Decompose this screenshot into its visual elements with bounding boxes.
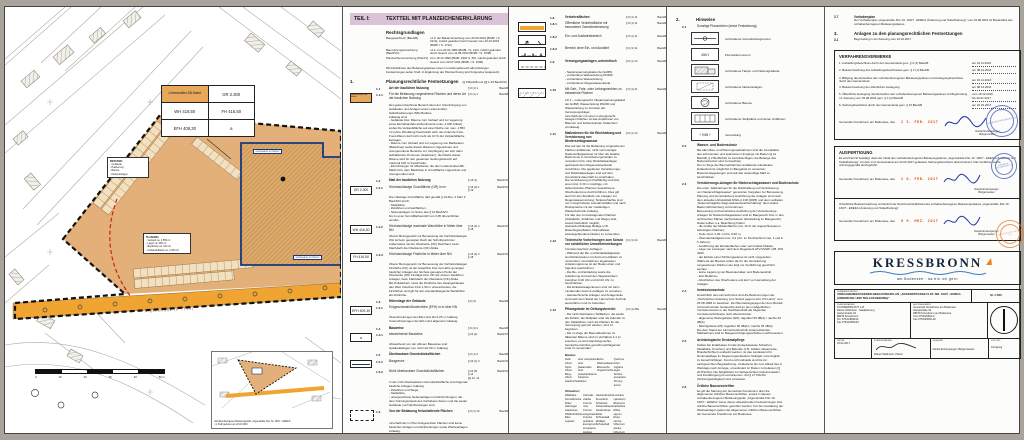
item-1-12: 1.12 Technische Vorkehrungen zum Schutz … (518, 239, 666, 247)
body-1-5-2: In der nicht überbaubaren Grundstücksflä… (389, 381, 468, 408)
item-2-1: 2.1 Sonstige Planzeichen (keine Festsetz… (676, 25, 824, 29)
wh-swatch: WH 416,50 (350, 225, 372, 234)
item-2-6: 2.6 Örtliche Bauvorschriften (676, 385, 824, 389)
sb-markt-swatch: Lebensmittel-SB-Markt (350, 93, 372, 103)
item-1-3: 1.3 Höhenlage der Gebäude § 9 (3) BauGB (350, 300, 508, 304)
gr-swatch: GR 2.300 (350, 186, 372, 195)
baeume-list: Feld-Ahorn Spitz-Ahorn Berg-Ahorn Hainbu… (565, 358, 626, 387)
bekanntmachung-place: Gemeinde Kressbronn am Bodensee, den (839, 219, 895, 223)
wave-icon (868, 270, 988, 275)
building-point (281, 177, 286, 182)
item-1-4: 1.4 Bauweise § 9 (1) 2 BauGB (350, 327, 508, 331)
item-1-3-1: EFH 409,30 1.3.1 Erdgeschossfußbodenhöhe… (350, 306, 508, 315)
body-2-4: Hinsichtlich des Lärmschutzes sind die B… (697, 294, 784, 336)
symbol-baeume: vorhandene Bäume (691, 96, 824, 109)
scale-tick: 40 (134, 375, 137, 379)
gesehen-label: GESEHEN (933, 340, 987, 342)
planzeichner-name: Rainer Wollmann, Planer (874, 353, 928, 356)
ausfertigung-title: AUSFERTIGUNG (839, 150, 1016, 155)
body-1-6: Innerhalb der im Plan festgesetzten Fläc… (389, 422, 468, 433)
divider (835, 198, 1020, 199)
tree-icon (691, 96, 719, 109)
ausfertigung-signature-row: Gemeinde Kressbronn am Bodensee, den 2 8… (839, 172, 1016, 186)
baugrenze-swatch (350, 360, 372, 368)
item-1-5: 1.5 Überbaubare Grundstücksflächen § 9 (… (350, 353, 508, 357)
overview-inset: Vorhabenbezogener Bebauungsplan „Argenst… (211, 351, 333, 429)
bauweise-swatch: a (350, 333, 372, 342)
section-3: 3. Anlagen zu den planungsrechtlichen Fe… (834, 31, 1021, 36)
verfahrensvermerke-title: VERFAHRENSVERMERKE (839, 54, 1016, 59)
inset-caption: Vorhabenbezogener Bebauungsplan „Argenst… (214, 421, 291, 427)
mayor-signature (942, 114, 988, 130)
parcel-number-icon: 400/1 (691, 48, 719, 61)
gesehen-name: Daniel Enzensperger, Bürgermeister (933, 348, 987, 351)
roof-label-2: GRÜNDACH EXTENSIV (293, 255, 322, 260)
item-1-9: 1.9 Versorgungsanlagen, unterirdisch § 9… (518, 60, 666, 70)
building-icon (691, 64, 719, 77)
vv-row-4: 4. Bekanntmachung der öffentlichen Ausle… (839, 86, 1016, 91)
bestand-lines: - Gebäude - Parkierung - Bäume - Nebenan… (110, 163, 146, 176)
item-1-8: 1.8 Verkehrsflächen § 9 (1) 11 BauGB (518, 16, 666, 20)
teil1-title: TEXTTEIL MIT PLANZEICHENERKLÄRUNG (386, 16, 492, 22)
straeucher-list: Waldrebe Kornelkirsche Roter Hartriegel … (565, 394, 626, 433)
roof-label-1: GRÜNDACH EXTENSIV (253, 149, 282, 154)
column-vermerke: 2.7 Vorhabenplan Der Vorhabenplan „Argen… (829, 7, 1024, 433)
verkehrsflaeche-swatch (518, 22, 546, 32)
parcel-boundary-icon (691, 32, 719, 45)
column-hinweise: 2. Hinweise 2.1 Sonstige Planzeichen (ke… (671, 7, 828, 433)
item-1-8-3: 1.8.3 Bereich ohne Ein- und Ausfahrt § 9… (518, 47, 666, 57)
body-1-2-1: Die zulässige Grundfläche darf gemäß § 1… (389, 196, 468, 223)
edeka-building-baugrenze (241, 143, 341, 265)
outbuilding-icon (691, 80, 719, 93)
scale-value: M. 1:500 (990, 294, 1001, 298)
north-arrow-icon (990, 306, 1018, 334)
schablone-wh: WH 416,50 (162, 103, 209, 119)
scale-bar: 0 10 20 30 40 50 m (35, 369, 165, 379)
body-1-9: - Niederspannungskabel der EnBW - vorhan… (565, 71, 626, 86)
schablone-bauweise: a (209, 120, 255, 136)
symbol-nebenanlagen: vorhandene Nebenanlagen (691, 80, 824, 93)
plan-sheet: Lebensmittel-SB-Markt GR 2.300 WH 416,50… (4, 6, 1020, 434)
schablone-nutzung: Lebensmittel-SB-Markt (162, 86, 209, 102)
ausfertigung-box: AUSFERTIGUNG Es wird hiermit bestätigt, … (834, 146, 1021, 241)
scale-tick: 30 (109, 375, 112, 379)
item-1-5-1: 1.5.1 Baugrenze § 23 (1) 3 BauNVO (350, 360, 508, 368)
symbol-grundstuecksgrenzen: vorhandene Grundstücksgrenzen (691, 32, 824, 45)
planner-signature (874, 342, 918, 352)
body-1-3-1: Überschreitungen der EFH sind bis 0,25 m… (389, 316, 468, 324)
item-1-2-2: WH 416,50 1.2.2 Höchstzulässige maximale… (350, 225, 508, 234)
plan-title: VORHABENBEZOGENER BEBAUUNGSPLAN „ARGENST… (837, 292, 961, 300)
planverfasser-value: PLANWERKSTATT e.B. Rainer Wollmann - Sta… (837, 306, 874, 324)
rechtsgrundlagen-title: Rechtsgrundlagen (386, 30, 508, 35)
teil1-label: TEIL I: (354, 16, 386, 22)
body-1-4-1: Abweichend von der offenen Bauweise sind… (389, 343, 468, 351)
mayor-signature (942, 172, 982, 186)
bekanntmachung-text: Ortsübliche Bekanntmachung und Eintritt … (839, 203, 1016, 210)
datum-value: 22.02.2017 (837, 342, 850, 345)
efh-swatch: EFH 409,30 (350, 306, 372, 315)
nutzungsschablone-map: Lebensmittel-SB-Markt GR 2.300 WH 416,50… (161, 85, 255, 137)
bestand-label: BESTAND: - Gebäude - Parkierung - Bäume … (107, 157, 149, 178)
section-2: 2. Hinweise (676, 17, 824, 22)
body-2-3: Die unter „Maßnahmen für die Rückhaltung… (697, 187, 784, 287)
item-1-10: 1.10 Mit Geh-, Fahr- oder Leitungsrechte… (518, 88, 666, 98)
item-1-1: 1.1 Art der baulichen Nutzung § 9 (1) 1 … (350, 87, 508, 91)
bekanntmachung-date-stamp: 0 9. MRZ. 2017 (901, 219, 938, 223)
fertigung-label: Fertigung (991, 346, 1018, 349)
einausfahrt-swatch (518, 35, 546, 45)
item-1-6: 1.6 Von der Bebauung freizuhaltende Fläc… (350, 410, 508, 421)
einleitung-note: Mit Inkrafttreten des Bebauungsplanes tr… (386, 67, 508, 74)
overview-inset-map (212, 352, 330, 408)
symbol-vermassung: + 9.88 + Vermaßung (691, 128, 824, 141)
kressbronn-logo: KRESSBRONN am Bodensee · da bin ich gern (834, 251, 1021, 285)
body-1-2-2: Oberer Bezugspunkt zur Bemessung der höc… (389, 235, 468, 250)
vv-row-1: 1. Aufstellungsbeschluss durch den Gemei… (839, 62, 1016, 67)
vv-row-6: 6. Satzungsbeschluss durch den Gemeinder… (839, 104, 1016, 109)
ohne-einausfahrt-swatch (518, 47, 546, 57)
straeucher-title: Sträucher: (565, 389, 666, 393)
ausfertigung-date-stamp: 2 8. FEB. 2017 (901, 177, 938, 181)
item-1-5-2: 1.5.2 Nicht überbaubare Grundstücksfläch… (350, 370, 508, 380)
item-1-2-3: FH 416,50 1.2.3 Höchstzulässige Firsthöh… (350, 253, 508, 262)
schablone-fh: FH 416,50 (209, 103, 255, 119)
rechtsgrundlage-planzv: Planzeichenverordnung (PlanzV) vom 18.12… (386, 57, 508, 64)
vv-row-2: 2. Bekanntmachung des Aufstellungsbeschl… (839, 69, 1016, 74)
body-1-12: Immissionsschutz-Auflagen: - Während der… (565, 248, 626, 305)
site-plan-map: Lebensmittel-SB-Markt GR 2.300 WH 416,50… (5, 7, 341, 433)
body-1-13: - Die nicht überbauten Teilflächen, die … (565, 313, 626, 351)
verfahrensvermerke-box: VERFAHRENSVERMERKE 1. Aufstellungsbeschl… (834, 50, 1021, 140)
item-1-8-1: 1.8.1 Öffentliche Verkehrsfläche mit bes… (518, 22, 666, 32)
scale-tick: 10 (59, 375, 62, 379)
mayor-signature (942, 214, 982, 228)
ausfertigung-text: Es wird hiermit bestätigt, dass der Inha… (839, 157, 1016, 168)
item-1-8-2: 1.8.2 Ein- und Ausfahrtsbereich § 9 (1) … (518, 35, 666, 45)
scale-tick: 0 (35, 375, 37, 379)
scale-tick: 50 m (159, 375, 165, 379)
rechtsgrundlage-baunvo: Baunutzungsverordnung (BauNVO) i.d.F. vo… (386, 49, 508, 56)
body-2-5: Sollten bei Erdarbeiten Funde (beispiels… (697, 344, 784, 382)
body-1-10: LR 1 – Leitungsrecht: Niederspannungskab… (565, 99, 626, 130)
planung-lines: - Verkauf ca. 1.550 m² - Lager ca. 650 m… (146, 239, 188, 252)
vv-place: Gemeinde Kressbronn am Bodensee, den (839, 120, 895, 124)
ausfertigung-signer: Daniel Enzensperger Bürgermeister (957, 188, 1016, 194)
ausfertigung-place: Gemeinde Kressbronn am Bodensee, den (839, 177, 895, 181)
btg-label: BTG.-NR.: (991, 340, 1018, 342)
baeume-title: Bäume: (565, 353, 666, 357)
item-2-7: 2.7 Vorhabenplan Der Vorhabenplan „Argen… (834, 15, 1021, 26)
symbol-flurstuecknummern: 400/1 Flurstücknummern (691, 48, 824, 61)
vorhabenplan-body: Der Vorhabenplan „Argenstraße Flst.-Nr. … (854, 19, 1021, 26)
section-1: 1. Planungsrechtliche Festsetzungen (§ 9… (350, 79, 508, 84)
parking-icon (691, 112, 719, 125)
body-1-11: Das auf den für die Bebauung vorgesehene… (565, 145, 626, 237)
leitungsrecht-swatch (518, 88, 546, 98)
schablone-efh: EFH 409,30 (162, 120, 209, 136)
body-2-6: Es gilt die Satzung der Gemeinde Kressbr… (697, 390, 784, 417)
freihalteflaeche-swatch (350, 410, 374, 421)
bekanntmachung-signature-row: Gemeinde Kressbronn am Bodensee, den 0 9… (839, 214, 1016, 228)
item-1-1-1: Lebensmittel-SB-Markt 1.1.1 Für die Beba… (350, 93, 508, 103)
symbol-gebaeude: vorhandene Haupt- und Nebengebäude (691, 64, 824, 77)
sail-icon (986, 258, 992, 265)
body-1-2-3: Oberer Bezugspunkt zur Bemessung der höc… (389, 263, 468, 297)
fh-swatch: FH 416,50 (350, 253, 372, 262)
schablone-gr: GR 2.300 (209, 86, 255, 102)
scale-tick: 20 (84, 375, 87, 379)
vv-row-3: 3. Billigung des Entwurfes des vorhabenb… (839, 77, 1016, 84)
vv-row-5: 5. Öffentliche Auslegung des Entwurfes d… (839, 93, 1016, 101)
item-1-2-1: GR 2.300 1.2.1 Höchstzulässige Grundfläc… (350, 186, 508, 195)
body-1-1-1: Der gekennzeichnete Bereich dient der Un… (389, 104, 468, 177)
item-1-11: 1.11 Maßnahmen für die Rückhaltung und V… (518, 132, 666, 144)
teil1-header: TEIL I: TEXTTEIL MIT PLANZEICHENERKLÄRUN… (350, 13, 508, 25)
dimension-icon: + 9.88 + (691, 128, 719, 141)
logo-tagline: am Bodensee · da bin ich gern (837, 277, 1018, 281)
rechtsgrundlage-baugb: Baugesetzbuch (BauGB) i.d.F. der Bekannt… (386, 37, 508, 47)
auftraggeber-value: Gemeinde Kressbronn am Bodensee Hauptstr… (913, 306, 956, 321)
symbol-stellplaetze: vorhandene Stellplätze und deren Zufahrt… (691, 112, 824, 125)
item-1-2: 1.2 Maß der baulichen Nutzung § 16 (1) B… (350, 179, 508, 183)
title-block: PLANBEZEICHNUNG VORHABENBEZOGENER BEBAUU… (834, 289, 1021, 359)
divider (342, 7, 343, 433)
versorgung-swatch (518, 60, 546, 70)
item-1-4-1: a 1.4.1 abweichende Bauweise § 22 (4) Ba… (350, 333, 508, 342)
column-textteil: TEIL I: TEXTTEIL MIT PLANZEICHENERKLÄRUN… (345, 7, 512, 433)
body-2-2: Bei allen Bau- und Planungsmaßnahmen sin… (697, 149, 784, 180)
vv-date-stamp: 2 3. FEB. 2017 (901, 120, 938, 124)
planung-label: PLANUNG: - Verkauf ca. 1.550 m² - Lager … (143, 233, 191, 254)
column-festsetzungen-2: 1.8 Verkehrsflächen § 9 (1) 11 BauGB 1.8… (513, 7, 670, 433)
item-3-1: 3.1 Begründung in der Fassung vom 22.02.… (834, 38, 1021, 42)
